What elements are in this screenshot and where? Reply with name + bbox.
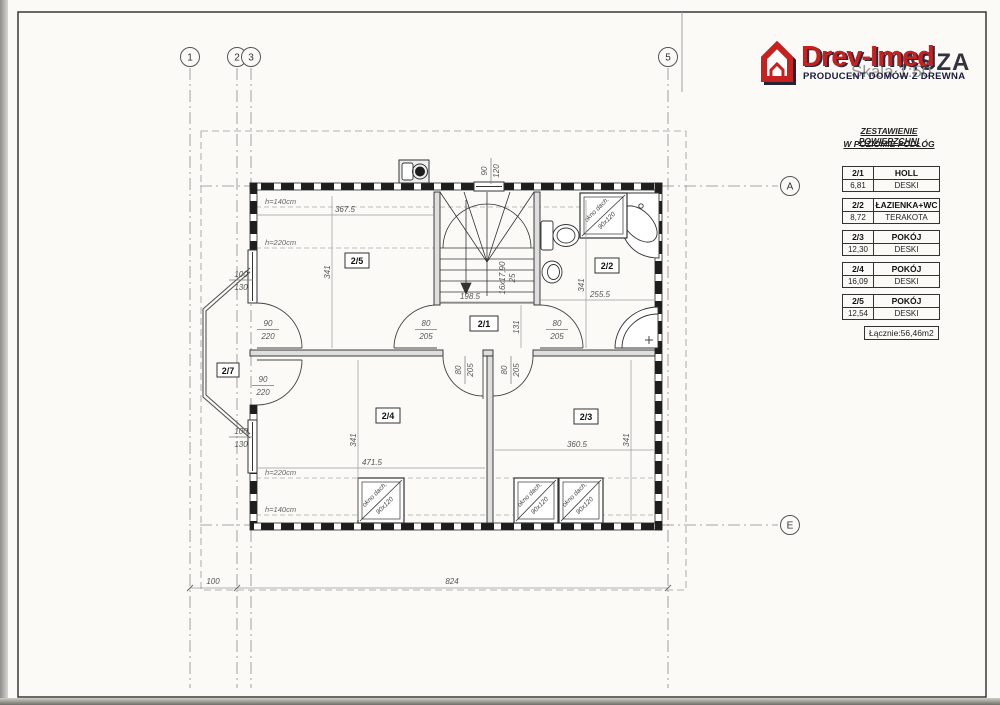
- svg-text:90: 90: [259, 375, 268, 384]
- skylight-bath: okno dach. 90x120: [580, 193, 627, 238]
- svg-text:100: 100: [234, 270, 248, 279]
- room-id: 2/3: [843, 231, 874, 243]
- room-id: 2/2: [843, 199, 874, 211]
- area-table-row: 2/3POKÓJ 12,30DESKI: [842, 230, 940, 256]
- room-area: 12,54: [843, 308, 874, 319]
- svg-text:80: 80: [454, 365, 463, 374]
- room-name: POKÓJ: [874, 263, 939, 275]
- dim-stair-note: 16x17,90: [498, 261, 507, 294]
- svg-text:90: 90: [480, 166, 489, 175]
- dim-room25-width: 367.5: [335, 205, 356, 214]
- room-floor: TERAKOTA: [874, 212, 939, 223]
- skylight-room24: okno dach. 90x120: [358, 478, 404, 523]
- area-table-row: 2/2ŁAZIENKA+WC 8,72TERAKOTA: [842, 198, 940, 224]
- svg-text:80: 80: [422, 319, 431, 328]
- page-frame: [18, 12, 986, 697]
- height-label-140-top: h=140cm: [265, 197, 296, 206]
- grid-col-5: 5: [665, 53, 671, 64]
- svg-text:80: 80: [553, 319, 562, 328]
- grid-axes: [190, 68, 778, 688]
- dim-room24-width: 471.5: [362, 458, 383, 467]
- room-id: 2/1: [843, 167, 874, 179]
- room-floor: DESKI: [874, 308, 939, 319]
- grid-row-a: A: [787, 182, 794, 193]
- dim-bath-depth: 341: [577, 278, 586, 291]
- svg-text:205: 205: [549, 332, 564, 341]
- height-label-220-bottom: h=220cm: [265, 468, 296, 477]
- height-label-220-top: h=220cm: [265, 238, 296, 247]
- svg-text:80: 80: [500, 365, 509, 374]
- brand-logo-text: Drev-Imed: [801, 41, 934, 74]
- room-name: POKÓJ: [874, 295, 939, 307]
- room-floor: DESKI: [874, 244, 939, 255]
- bay-2-7: [203, 268, 250, 438]
- scanned-floor-plan-page: ASZA Skala 1:50 Drev-Imed PRODUCENT DOMÓ…: [0, 0, 1000, 705]
- svg-text:130: 130: [234, 283, 248, 292]
- room-floor: DESKI: [874, 276, 939, 287]
- grid-col-2: 2: [234, 53, 240, 64]
- dim-bath-width: 255.5: [589, 290, 611, 299]
- staircase: [440, 192, 534, 303]
- interior-walls: [250, 192, 655, 523]
- skylight-room23-a: okno dach. 90x120: [514, 478, 558, 523]
- grid-col-1: 1: [187, 53, 193, 64]
- grid-row-e: E: [787, 521, 794, 532]
- grid-col-3: 3: [248, 53, 254, 64]
- room-label-2-2: 2/2: [601, 261, 614, 271]
- room-name: HOLL: [874, 167, 939, 179]
- shower-tray: [615, 307, 658, 348]
- room-area: 8,72: [843, 212, 874, 223]
- room-floor: DESKI: [874, 180, 939, 191]
- svg-text:205: 205: [466, 363, 475, 378]
- dim-overall-left: 100: [206, 577, 220, 586]
- room-id: 2/5: [843, 295, 874, 307]
- floor-plan-drawing: 1 2 3 5 A E h=140cm h=220cm h=220cm h=14…: [0, 0, 1000, 705]
- room-area: 16,09: [843, 276, 874, 287]
- dim-hall-width: 198.5: [460, 292, 481, 301]
- dim-room24-depth: 341: [349, 433, 358, 446]
- room-name: ŁAZIENKA+WC: [874, 199, 939, 211]
- room-id: 2/4: [843, 263, 874, 275]
- height-label-140-bottom: h=140cm: [265, 505, 296, 514]
- area-table-title-2: W POZIOMIE PODŁÓG: [834, 139, 944, 149]
- svg-text:205: 205: [512, 363, 521, 378]
- roof-height-lines: [256, 207, 655, 515]
- area-table-row: 2/1HOLL 6,81DESKI: [842, 166, 940, 192]
- scan-edge-left: [0, 0, 8, 705]
- room-area: 12,30: [843, 244, 874, 255]
- dim-hall-depth: 131: [512, 320, 521, 333]
- svg-text:90: 90: [264, 319, 273, 328]
- house-logo-icon: [754, 38, 802, 88]
- svg-text:220: 220: [260, 332, 275, 341]
- room-label-2-7: 2/7: [222, 366, 235, 376]
- dim-room23-depth: 341: [622, 433, 631, 446]
- svg-text:130: 130: [234, 440, 248, 449]
- room-label-2-4: 2/4: [382, 411, 395, 421]
- room-area: 6,81: [843, 180, 874, 191]
- toilet-tank: [541, 221, 553, 250]
- svg-text:205: 205: [418, 332, 433, 341]
- dim-overall-main: 824: [445, 577, 459, 586]
- svg-text:220: 220: [255, 388, 270, 397]
- dim-stair-tread: 25: [508, 273, 517, 283]
- area-table-row: 2/4POKÓJ 16,09DESKI: [842, 262, 940, 288]
- brand-tagline: PRODUCENT DOMÓW Z DREWNA: [803, 71, 965, 82]
- svg-text:100: 100: [234, 427, 248, 436]
- room-label-2-5: 2/5: [351, 256, 364, 266]
- room-label-2-3: 2/3: [580, 412, 593, 422]
- dim-room25-depth: 341: [323, 265, 332, 278]
- dim-room23-width: 360.5: [567, 440, 588, 449]
- chimney: [399, 160, 429, 183]
- area-total: Łącznie:56,46m2: [864, 326, 939, 340]
- svg-text:120: 120: [492, 164, 501, 178]
- room-label-2-1: 2/1: [478, 319, 491, 329]
- skylight-room23-b: okno dach. 90x120: [559, 478, 603, 523]
- area-table-row: 2/5POKÓJ 12,54DESKI: [842, 294, 940, 320]
- scan-edge-bottom: [0, 698, 1000, 705]
- room-name: POKÓJ: [874, 231, 939, 243]
